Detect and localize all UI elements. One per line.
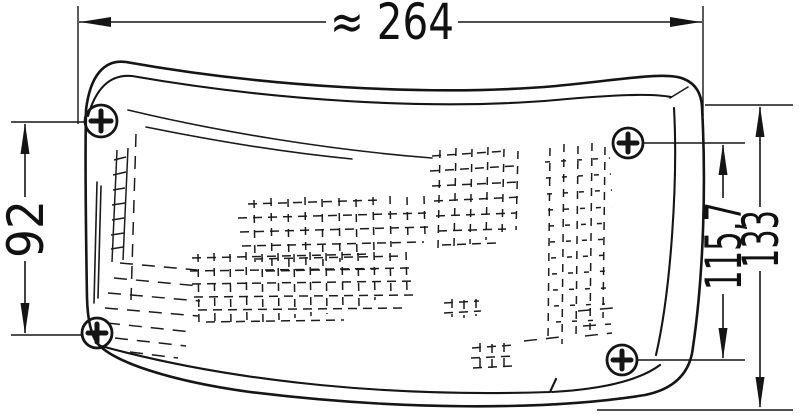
lens-corner-chamfer — [670, 87, 688, 98]
dimension-right-outer-label: 133 — [732, 210, 790, 268]
lens-bezel-bottom-right — [552, 365, 660, 392]
lens-bezel-right — [656, 108, 675, 355]
arrowhead-down-icon — [756, 377, 765, 408]
arrowhead-left-icon — [80, 17, 111, 27]
lens-bezel-bottom — [101, 346, 556, 393]
texture-column-band-right — [548, 143, 605, 344]
texture-grid-central-lower-rows — [190, 254, 416, 322]
lamp-outer-contour — [86, 62, 704, 407]
lens-left-inner-edge — [94, 182, 101, 303]
phillips-cross-icon — [91, 111, 111, 131]
texture-bottom-dashes — [524, 308, 613, 341]
arrowhead-up-icon — [756, 106, 765, 137]
texture-patch-small-2 — [471, 343, 515, 371]
texture-column-band-right-rows — [545, 158, 612, 322]
lens-bezel-top — [88, 76, 671, 116]
arrowhead-down-icon — [719, 328, 728, 359]
lamp-body — [86, 62, 704, 407]
dimension-width-label: ≈ 264 — [330, 0, 454, 51]
texture-patch-small-1 — [444, 299, 481, 318]
arrowhead-up-icon — [21, 123, 30, 154]
screw-top-left — [85, 105, 117, 137]
texture-grid-midright-cols — [438, 147, 518, 248]
phillips-cross-icon — [613, 351, 631, 369]
texture-sloped-dashes — [105, 263, 200, 358]
drawing-canvas: ≈ 264 92 115,7 133 — [0, 0, 800, 417]
texture-grid-central-upper-rows — [238, 200, 428, 271]
arrowhead-right-icon — [670, 17, 701, 27]
screws — [82, 105, 643, 375]
dimension-left-height: 92 — [0, 122, 87, 335]
texture-grid-midright-rows — [430, 151, 522, 245]
arrowhead-up-icon — [719, 144, 728, 175]
lens-crease-line-2 — [146, 127, 352, 159]
screw-bottom-right — [607, 345, 637, 375]
screw-top-right — [613, 128, 643, 158]
lens-optics-texture — [105, 134, 613, 371]
phillips-cross-icon — [619, 134, 637, 152]
texture-ladder-strip — [111, 148, 128, 262]
texture-grid-central-lower-cols — [198, 252, 407, 326]
lamp-technical-drawing: ≈ 264 92 115,7 133 — [0, 0, 800, 417]
dimension-width: ≈ 264 — [78, 0, 703, 124]
texture-grid-central-upper-cols — [254, 196, 425, 270]
texture-dashed-vertical — [131, 134, 136, 300]
arrowhead-down-icon — [21, 303, 30, 334]
screw-bottom-left — [82, 318, 112, 348]
dimension-left-height-label: 92 — [0, 200, 55, 258]
